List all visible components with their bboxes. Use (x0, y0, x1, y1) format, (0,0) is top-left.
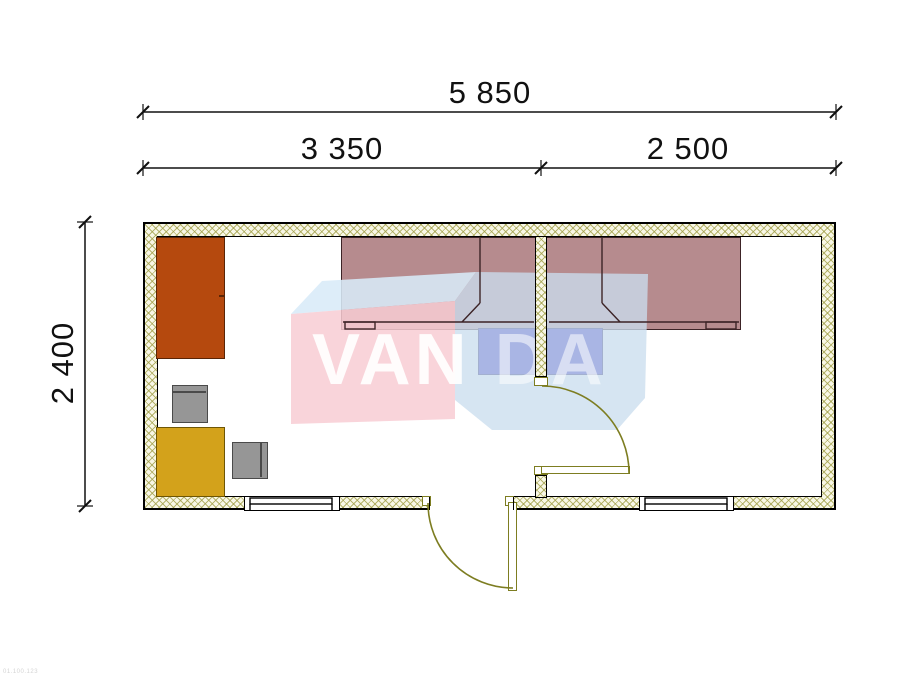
dimension-total-width: 5 850 (390, 78, 590, 108)
drawing-code: 01.100.123 (3, 669, 38, 675)
interior-door-leaf (541, 466, 630, 474)
dimension-room1-width: 3 350 (242, 134, 442, 164)
entrance-door-swing-arc (428, 503, 513, 588)
window-room2 (639, 497, 734, 511)
bed-room1 (341, 237, 536, 330)
dimension-depth: 2 400 (48, 263, 78, 463)
nightstand-room1 (478, 328, 535, 375)
floor-plan-canvas: VAN DA (0, 0, 924, 700)
bed-room2 (546, 237, 741, 330)
entrance-door-leaf (508, 502, 517, 591)
partition-wall-stub (535, 475, 547, 498)
window-room1 (244, 497, 340, 511)
stool (172, 385, 208, 423)
partition-wall-upper (535, 236, 547, 377)
wardrobe-handle (219, 295, 225, 297)
stool-back-line (173, 391, 206, 393)
entrance-door-opening (429, 494, 514, 512)
nightstand-room2 (547, 328, 603, 375)
desk-chair (232, 442, 268, 479)
table (156, 427, 225, 497)
desk-chair-back-line (260, 443, 262, 477)
entrance-door-jamb-left (422, 496, 431, 506)
partition-door-jamb-top (534, 377, 548, 386)
wardrobe (156, 237, 225, 359)
dimension-room2-width: 2 500 (588, 134, 788, 164)
